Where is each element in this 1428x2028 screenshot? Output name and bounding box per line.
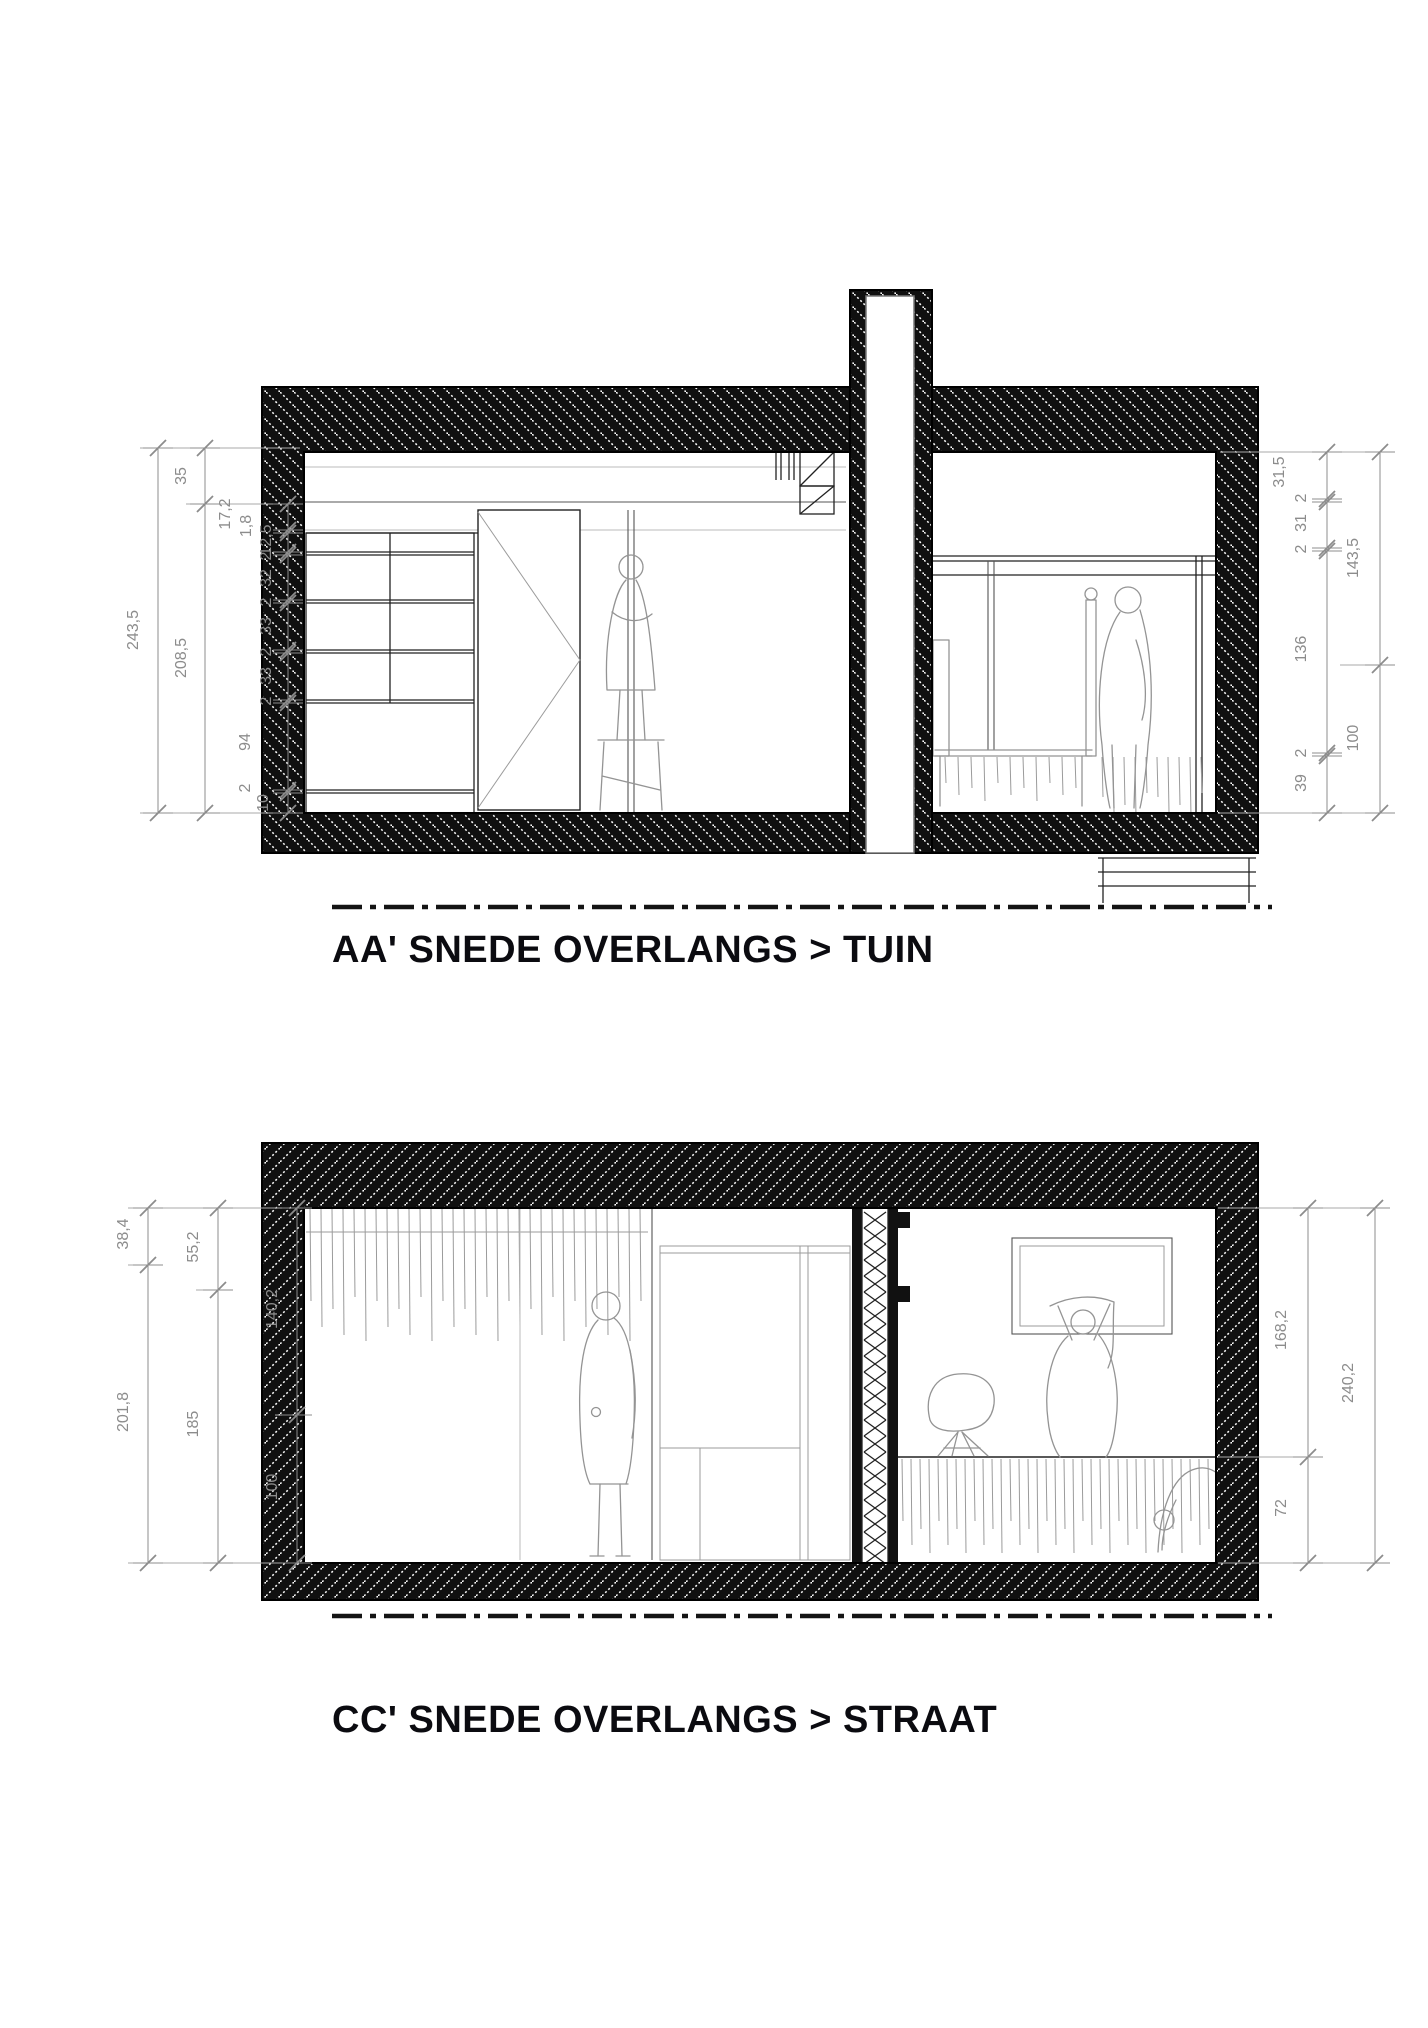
svg-text:38,4: 38,4 [115,1218,132,1249]
cc-person-reaching-figure [1047,1297,1117,1457]
svg-text:1,8: 1,8 [238,515,255,537]
svg-text:143,5: 143,5 [1345,538,1362,578]
svg-text:72: 72 [1273,1499,1290,1517]
aa-grass [1102,757,1202,817]
aa-pergola [932,556,1216,813]
dims-CC-right: 168,272240,2 [1273,1200,1390,1571]
svg-text:33: 33 [258,617,275,635]
svg-text:2: 2 [258,551,275,560]
cc-window [1012,1238,1172,1334]
section-cc-drawing: 38,4201,855,2185140,2100 168,272240,2 CC… [115,1143,1390,1741]
aa-bench [1098,858,1256,903]
svg-text:39: 39 [1293,774,1310,792]
svg-text:2: 2 [258,696,275,705]
svg-text:2: 2 [237,783,254,792]
cc-partition [852,1208,910,1564]
svg-text:2: 2 [1293,544,1310,553]
svg-text:2: 2 [1293,748,1310,757]
aa-ceiling-fixtures [776,452,834,514]
cc-wardrobe [660,1246,850,1560]
svg-text:100: 100 [1345,725,1362,752]
aa-bed [933,588,1097,806]
child-on-chair-figure [598,555,664,810]
section-aa-drawing: 243,535208,517,21,812,5232233233294210 3… [125,290,1395,971]
svg-text:2: 2 [1293,493,1310,502]
svg-text:100: 100 [264,1474,281,1501]
svg-text:33: 33 [258,667,275,685]
section-cc-title: CC' SNEDE OVERLANGS > STRAAT [332,1699,997,1741]
svg-text:140,2: 140,2 [264,1289,281,1329]
svg-text:10: 10 [255,794,272,812]
svg-text:2: 2 [258,647,275,656]
cc-clothes [310,1209,641,1341]
section-aa-title: AA' SNEDE OVERLANGS > TUIN [332,929,934,971]
aa-door-panel [478,510,580,810]
svg-text:17,2: 17,2 [217,498,234,529]
svg-text:185: 185 [185,1411,202,1438]
svg-text:94: 94 [237,733,254,751]
aa-glazing [988,561,994,750]
aa-guide-lines [140,448,1392,813]
cc-walls [262,1143,1258,1600]
svg-text:136: 136 [1293,636,1310,663]
sheet-canvas: 243,535208,517,21,812,5232233233294210 3… [0,0,1428,2028]
architectural-sections-sheet: { "sections": [ { "id": "AA", "title": "… [0,0,1428,2028]
svg-text:32: 32 [258,569,275,587]
cc-door-handle [592,1408,601,1417]
svg-text:12,5: 12,5 [258,524,275,555]
aa-standing-person-figure [1099,587,1151,808]
aa-bed-skirt [945,757,1076,801]
svg-text:31,5: 31,5 [1271,456,1288,487]
svg-text:240,2: 240,2 [1340,1363,1357,1403]
svg-text:2: 2 [258,597,275,606]
cc-door-lines [520,1208,652,1560]
svg-text:55,2: 55,2 [185,1231,202,1262]
dims-AA-right: 31,52312136239143,5100 [1271,444,1395,821]
aa-walls [262,290,1258,853]
svg-text:31: 31 [1293,514,1310,532]
svg-text:35: 35 [173,467,190,485]
svg-text:243,5: 243,5 [125,610,142,650]
svg-text:201,8: 201,8 [115,1392,132,1432]
cc-chair [928,1374,994,1456]
aa-chimney-flue [866,296,914,853]
svg-text:208,5: 208,5 [173,638,190,678]
svg-text:168,2: 168,2 [1273,1310,1290,1350]
cc-partition-zigzag [864,1212,886,1564]
cc-standing-person-figure [580,1292,636,1556]
